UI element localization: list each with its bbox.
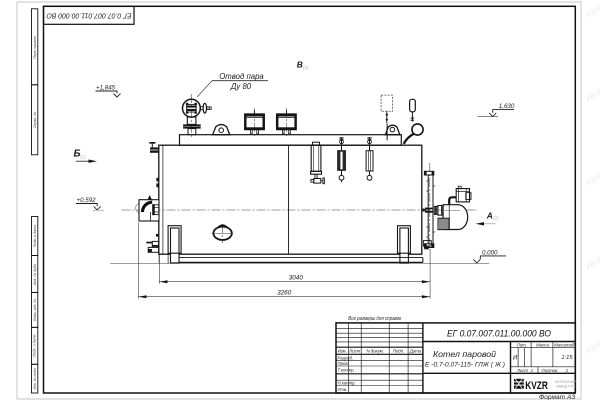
svg-text:Масса: Масса xyxy=(536,342,549,347)
svg-text:1,630: 1,630 xyxy=(499,103,515,110)
svg-text:И: И xyxy=(513,356,518,362)
svg-text:ЕГ 0.07.007.011.00.000 ВО: ЕГ 0.07.007.011.00.000 ВО xyxy=(447,329,551,339)
svg-text:Отвод пара: Отвод пара xyxy=(219,72,264,81)
svg-text:Лит.: Лит. xyxy=(516,342,527,347)
svg-text:ЗАВОД РЭП: ЗАВОД РЭП xyxy=(556,385,576,389)
svg-text:Лист: Лист xyxy=(516,368,528,373)
svg-text:(2): (2) xyxy=(493,216,499,221)
svg-text:(2): (2) xyxy=(303,65,309,70)
svg-text:N докум.: N докум. xyxy=(367,349,384,354)
svg-text:Инв. № дубл.: Инв. № дубл. xyxy=(33,263,37,285)
svg-text:Н.контр.: Н.контр. xyxy=(338,381,356,386)
svg-text:ЕГ 0.07.007.011.00.000 ВО: ЕГ 0.07.007.011.00.000 ВО xyxy=(46,11,131,20)
svg-text:3260: 3260 xyxy=(277,290,292,297)
svg-text:КОТЕЛЬНЫЙ: КОТЕЛЬНЫЙ xyxy=(555,380,577,384)
svg-text:Все размеры для справок: Все размеры для справок xyxy=(348,316,401,322)
svg-text:Пров.: Пров. xyxy=(338,361,349,366)
svg-text:Листов: Листов xyxy=(541,368,558,373)
svg-text:Взам. инв. №: Взам. инв. № xyxy=(33,299,37,321)
svg-text:Масштаб: Масштаб xyxy=(554,342,575,347)
svg-text:Лист: Лист xyxy=(348,349,360,354)
svg-text:В: В xyxy=(297,60,303,70)
svg-text:KVZR: KVZR xyxy=(525,380,548,392)
svg-text:0,000: 0,000 xyxy=(482,250,498,257)
svg-text:Справ. №: Справ. № xyxy=(33,112,37,128)
svg-text:Е -0,7-0,07-115- ГЛЖ ( Ж ): Е -0,7-0,07-115- ГЛЖ ( Ж ) xyxy=(425,362,505,369)
svg-text:Формат А3: Формат А3 xyxy=(539,394,575,400)
svg-text:Подп. и дата: Подп. и дата xyxy=(33,334,37,357)
svg-text:(2): (2) xyxy=(80,154,86,159)
svg-text:Утв.: Утв. xyxy=(338,387,348,392)
svg-text:А: А xyxy=(486,211,493,221)
svg-text:Перв. примен.: Перв. примен. xyxy=(33,35,37,59)
svg-text:Подп. и дата: Подп. и дата xyxy=(33,225,37,248)
svg-text:Дата: Дата xyxy=(409,349,422,354)
svg-text:Т.контр.: Т.контр. xyxy=(338,368,355,373)
svg-text:Ду 80: Ду 80 xyxy=(230,82,252,91)
svg-text:Котел паровой: Котел паровой xyxy=(433,350,496,359)
svg-text:Инв. № подл.: Инв. № подл. xyxy=(33,367,37,389)
svg-text:+0,592: +0,592 xyxy=(77,197,97,204)
svg-text:Подп.: Подп. xyxy=(393,349,404,354)
svg-text:2: 2 xyxy=(565,368,569,373)
svg-text:+1,845: +1,845 xyxy=(96,85,116,92)
svg-text:1:15: 1:15 xyxy=(561,355,573,361)
svg-text:Разраб.: Разраб. xyxy=(338,356,354,361)
svg-text:3040: 3040 xyxy=(289,275,304,282)
svg-text:Изм.: Изм. xyxy=(338,349,347,354)
